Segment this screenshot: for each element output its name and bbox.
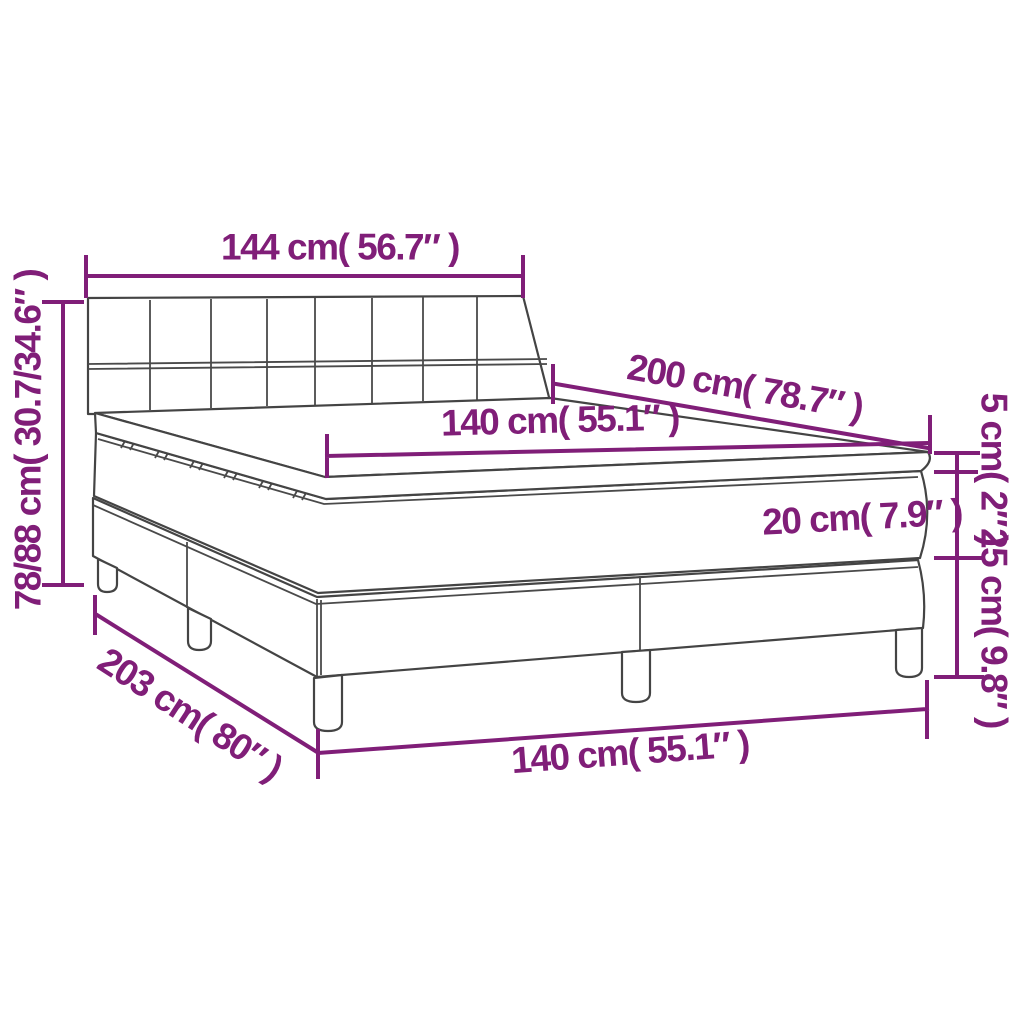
leg-foot-right [896,628,922,677]
bed-dimension-diagram: 144 cm( 56.7″ ) 78/88 cm( 30.7/34.6″ ) 2… [0,0,1024,1024]
diagram-canvas: 144 cm( 56.7″ ) 78/88 cm( 30.7/34.6″ ) 2… [0,0,1024,1024]
dim-line-total-height [44,302,82,585]
dim-label-headboard-width: 144 cm( 56.7″ ) [221,227,459,268]
headboard-outline [88,296,551,414]
dim-label-base-height: 25 cm( 9.8″ ) [974,528,1015,728]
headboard [88,296,551,414]
dim-label-total-height: 78/88 cm( 30.7/34.6″ ) [8,270,49,611]
dim-label-bed-width: 140 cm( 55.1″ ) [510,723,750,781]
dim-label-mattress-width: 140 cm( 55.1″ ) [441,396,680,443]
leg-front-corner [314,675,342,731]
leg-foot-middle [622,650,650,702]
dim-label-topper-thickness: 5 cm( 2″ ) [974,393,1015,546]
